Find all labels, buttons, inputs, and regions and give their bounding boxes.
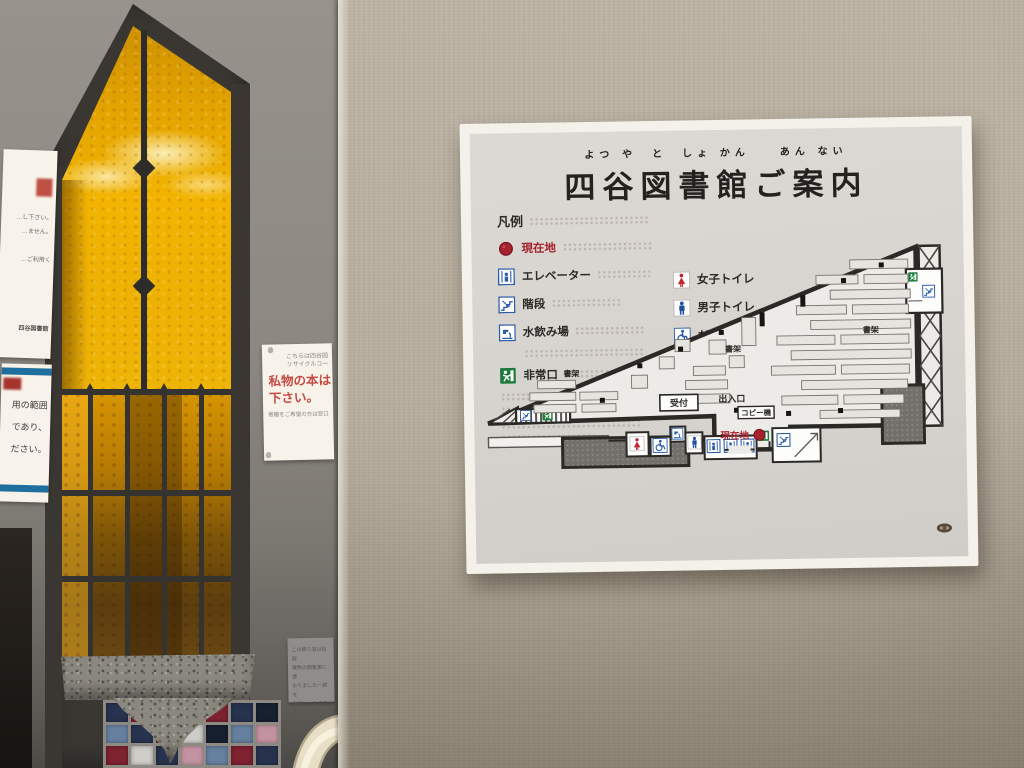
map-stair-room-topright [906,268,943,313]
mosaic-tile [181,746,203,765]
plaque-text: 建物の閲覧室に使 [292,664,331,683]
window-muntin [199,392,204,658]
left-truss-tip [488,407,518,423]
notice-text-fragment: …し下さい。 [2,211,52,222]
notice-text-fragment: …ません。 [2,225,52,236]
shelf-label: 書架 [863,324,879,334]
window-cusp [159,383,169,392]
notice-text-fragment: …ご利用く [1,253,51,264]
current-location-dot [754,429,765,440]
plaque-text: この飾り窓は旧館 [292,646,331,665]
current-location-label: 現在地 [720,430,749,442]
mosaic-tile [106,725,128,744]
push-pin [266,452,271,457]
notice-text: 寄贈をご希望の方は窓口 [263,409,333,418]
notice-paper-blue: 用の範囲 であり、 ださい。 [0,363,52,502]
braille-dots [530,216,648,227]
shelf-label: 書架 [563,368,579,378]
floor-plan-map: 受付 出入口 コピー機 現在地 書架 書架 書架 [477,242,962,542]
page-title: 四谷図書館ご案内 [470,156,963,209]
guide-panel: よつ や と しょ かん あん ない 四谷図書館ご案内 凡例 現在地 [470,126,969,564]
mosaic-tile [231,725,253,744]
mosaic-tile [131,746,153,765]
window-mullion [141,30,147,392]
shelf-label: 書架 [725,344,741,354]
mosaic-tile [256,703,278,722]
glass-shading [62,180,88,392]
notice-paper-pillar: こちらは四谷図 リサイクルコー 私物の本は 下さい。 寄贈をご希望の方は窓口 [262,343,334,460]
notice-signature: 四谷図書館 [18,323,48,333]
mosaic-tile [206,746,228,765]
stained-glass-window [45,0,250,768]
push-pin [268,347,273,352]
red-heading-fragment [36,178,53,197]
mosaic-tile [231,746,253,765]
entrance-label: 出入口 [718,393,745,404]
mosaic-tile [256,725,278,744]
red-logo-fragment [3,377,21,389]
blue-bar [2,367,52,375]
window-cusp [196,383,206,392]
window-muntin [62,490,231,496]
window-history-plaque: この飾り窓は旧館 建物の閲覧室に使 おりました一部を 保存したものです。 [287,638,334,703]
reception-label: 受付 [670,397,688,408]
blue-bar [0,484,49,492]
mosaic-tile [106,746,128,765]
window-muntin [88,392,93,658]
stone-window-sill [61,654,255,700]
library-wall-photo: …し下さい。 …ません。 …ご利用く 四谷図書館 用の範囲 であり、 ださい。 … [0,0,1024,768]
notice-red-text: 下さい。 [263,389,333,407]
notice-text: リサイクルコー [262,360,332,369]
window-cusp [122,383,132,392]
mosaic-tile [231,703,253,722]
notice-paper-top-left: …し下さい。 …ません。 …ご利用く 四谷図書館 [0,149,58,359]
notice-red-text: 私物の本は [262,372,332,390]
notice-text-fragment: 用の範囲 [2,397,48,411]
window-muntin [162,392,167,658]
notice-text-fragment: であり、 [1,419,47,433]
mosaic-tile [256,746,278,765]
notice-text-fragment: ださい。 [0,441,46,455]
dark-floor-shadow [0,528,32,768]
window-cusp [85,383,95,392]
window-muntin [125,392,130,658]
legend-header: 凡例 [497,214,523,229]
plaque-text: おりました一部を [292,682,331,701]
sign-title-block: よつ や と しょ かん あん ない 四谷図書館ご案内 [470,140,963,209]
mosaic-tile [206,725,228,744]
copier-label: コピー機 [741,407,772,417]
wall-corner-edge [338,0,350,768]
library-guide-board: よつ や と しょ かん あん ない 四谷図書館ご案内 凡例 現在地 [459,116,978,574]
window-muntin [62,576,231,582]
